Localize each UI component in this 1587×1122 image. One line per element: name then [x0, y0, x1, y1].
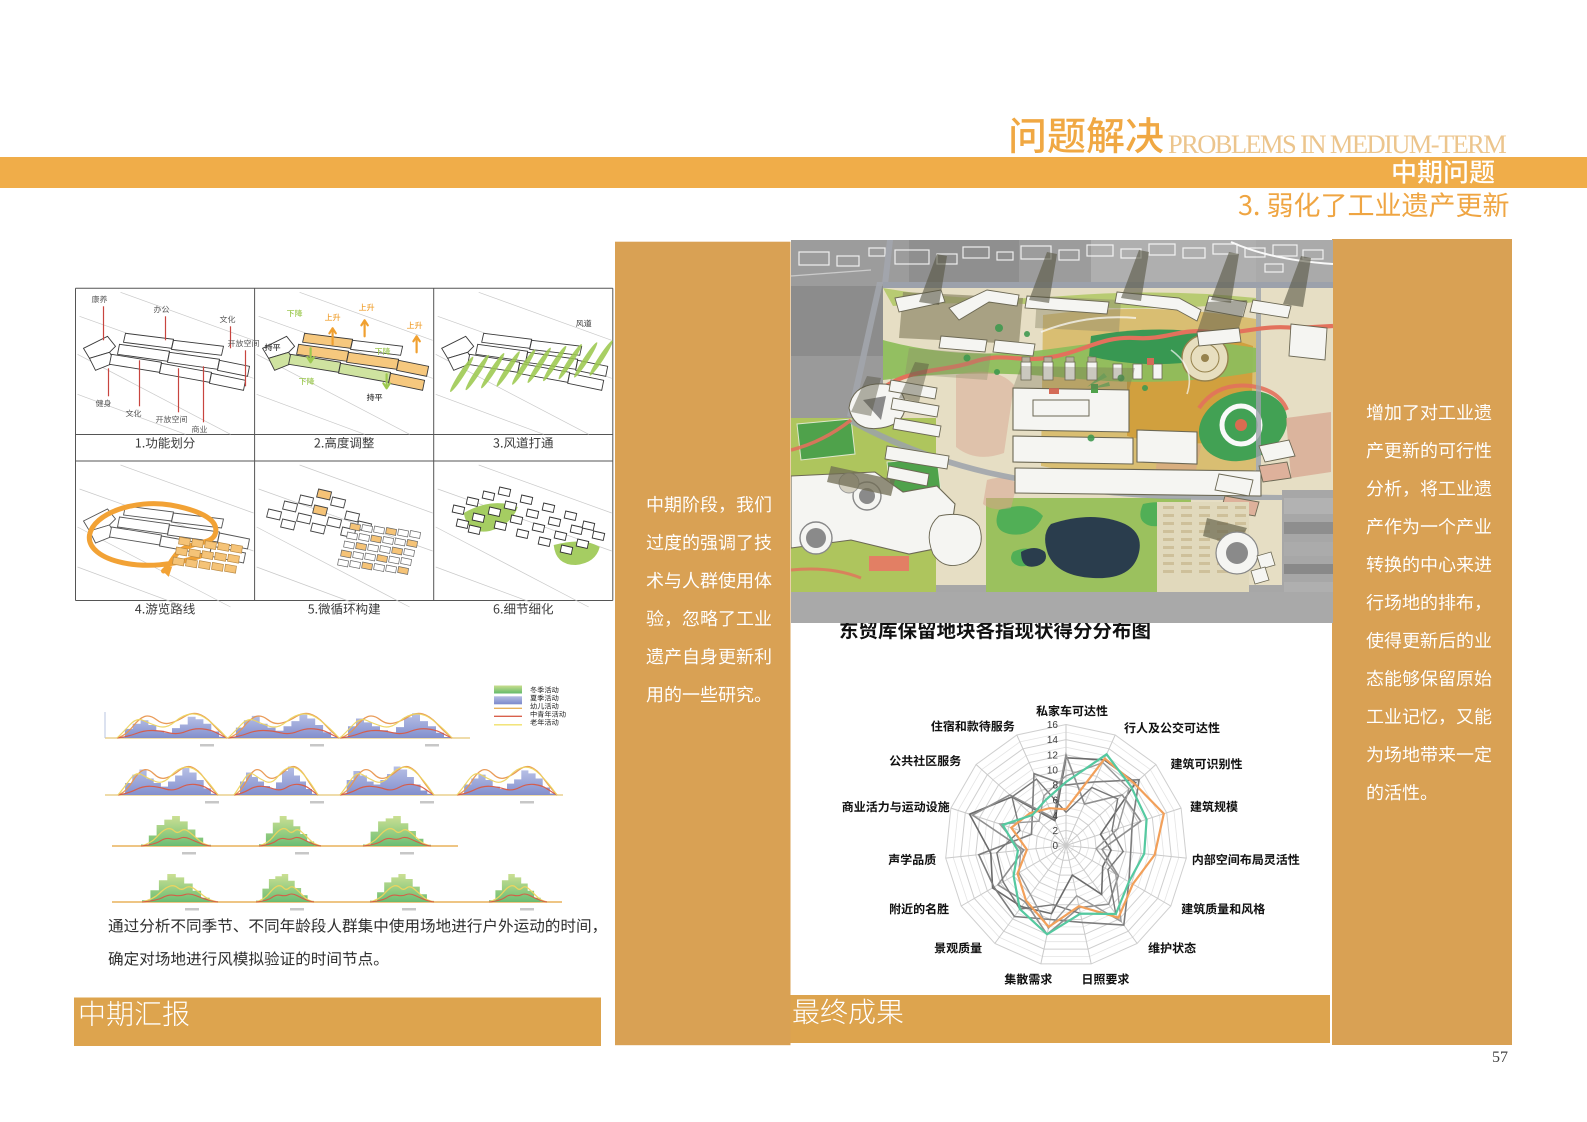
svg-text:16: 16 [1047, 720, 1059, 731]
svg-text:6: 6 [1052, 796, 1058, 807]
svg-text:PROBLEMS IN MEDIUM-TERM: PROBLEMS IN MEDIUM-TERM [1168, 129, 1506, 159]
svg-text:2: 2 [1052, 826, 1058, 837]
svg-text:0: 0 [1052, 841, 1058, 852]
svg-text:14: 14 [1047, 735, 1059, 746]
svg-text:57: 57 [1492, 1049, 1508, 1066]
svg-text:8: 8 [1052, 781, 1058, 792]
svg-text:4: 4 [1052, 811, 1058, 822]
svg-text:10: 10 [1047, 765, 1059, 776]
svg-text:12: 12 [1047, 750, 1059, 761]
